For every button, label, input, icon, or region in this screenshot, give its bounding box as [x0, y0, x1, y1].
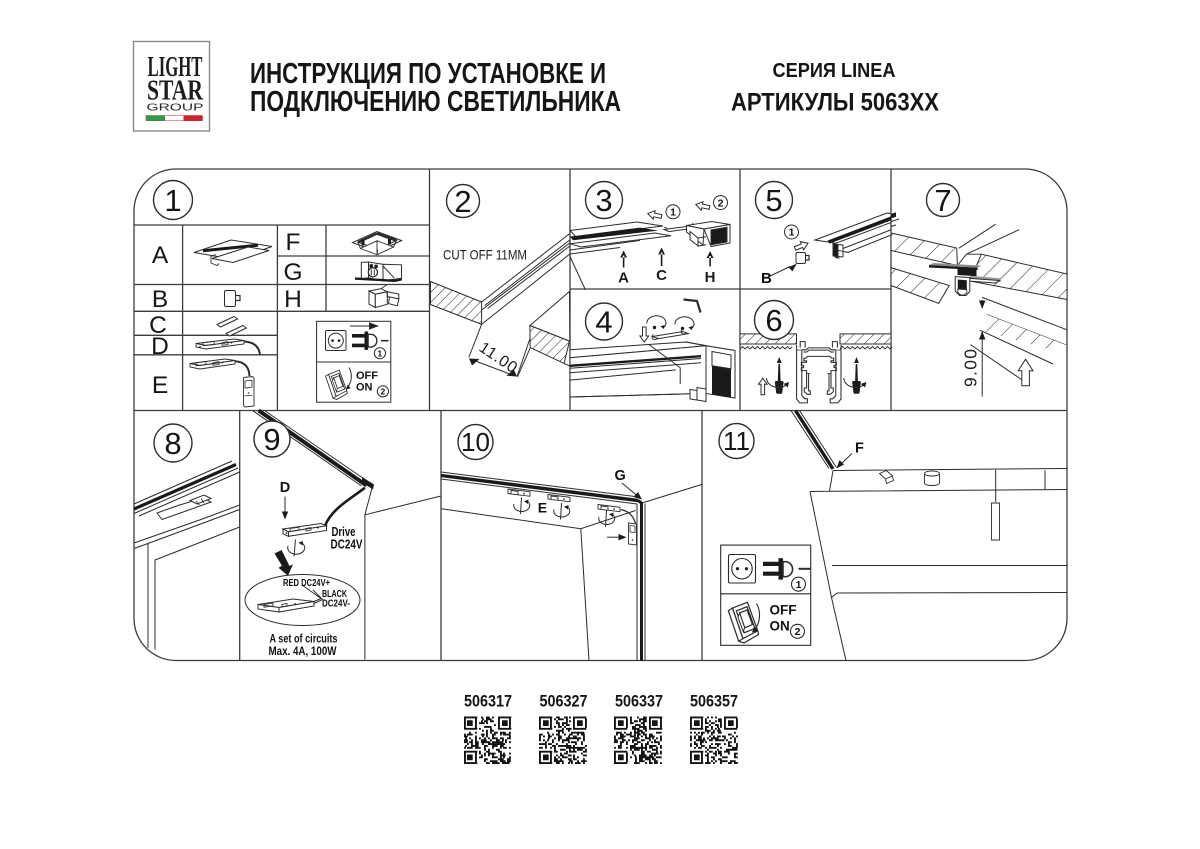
svg-text:8: 8: [164, 426, 181, 461]
svg-text:СЕРИЯ LINEA: СЕРИЯ LINEA: [773, 60, 896, 82]
svg-text:2: 2: [718, 197, 724, 209]
svg-text:9.00: 9.00: [961, 349, 981, 387]
svg-text:9: 9: [263, 422, 280, 457]
svg-text:OFF: OFF: [356, 370, 378, 382]
svg-text:E: E: [152, 372, 168, 399]
svg-text:ON: ON: [356, 382, 373, 394]
svg-text:B: B: [152, 286, 168, 313]
svg-text:1: 1: [670, 207, 676, 219]
svg-text:3: 3: [595, 183, 612, 218]
svg-text:1: 1: [789, 227, 795, 239]
svg-text:6: 6: [765, 303, 782, 338]
svg-text:D: D: [280, 480, 290, 496]
svg-text:H: H: [705, 269, 716, 286]
svg-text:11: 11: [723, 426, 750, 456]
svg-text:ON: ON: [770, 619, 790, 634]
svg-text:2: 2: [381, 387, 386, 397]
svg-text:Max. 4A, 100W: Max. 4A, 100W: [269, 644, 338, 658]
svg-text:B: B: [761, 270, 772, 287]
svg-text:506357: 506357: [690, 693, 738, 711]
svg-text:GROUP: GROUP: [147, 102, 204, 114]
svg-text:D: D: [151, 333, 169, 360]
svg-text:2: 2: [454, 184, 471, 219]
svg-text:G: G: [615, 468, 626, 484]
svg-text:F: F: [286, 229, 301, 256]
svg-text:506327: 506327: [540, 693, 588, 711]
svg-text:АРТИКУЛЫ 5063ХХ: АРТИКУЛЫ 5063ХХ: [731, 89, 939, 117]
svg-text:ПОДКЛЮЧЕНИЮ СВЕТИЛЬНИКА: ПОДКЛЮЧЕНИЮ СВЕТИЛЬНИКА: [250, 86, 621, 118]
svg-text:E: E: [538, 499, 547, 515]
svg-text:G: G: [283, 259, 302, 286]
svg-text:DC24V-: DC24V-: [322, 598, 350, 610]
svg-text:7: 7: [934, 183, 951, 218]
svg-text:1: 1: [378, 348, 383, 358]
svg-text:506317: 506317: [464, 693, 512, 711]
svg-text:A: A: [618, 270, 629, 287]
svg-text:4: 4: [595, 305, 612, 340]
svg-text:10: 10: [461, 427, 490, 457]
svg-text:5: 5: [765, 183, 782, 218]
svg-text:C: C: [656, 267, 667, 284]
svg-text:1: 1: [164, 183, 181, 218]
svg-text:F: F: [855, 441, 864, 457]
svg-text:H: H: [284, 286, 302, 313]
svg-text:1: 1: [796, 579, 802, 591]
svg-text:DC24V: DC24V: [331, 537, 363, 552]
svg-text:OFF: OFF: [770, 603, 797, 618]
svg-text:CUT OFF 11MM: CUT OFF 11MM: [443, 248, 527, 263]
svg-text:506337: 506337: [615, 693, 663, 711]
svg-text:2: 2: [795, 626, 801, 638]
svg-text:A: A: [152, 242, 169, 269]
